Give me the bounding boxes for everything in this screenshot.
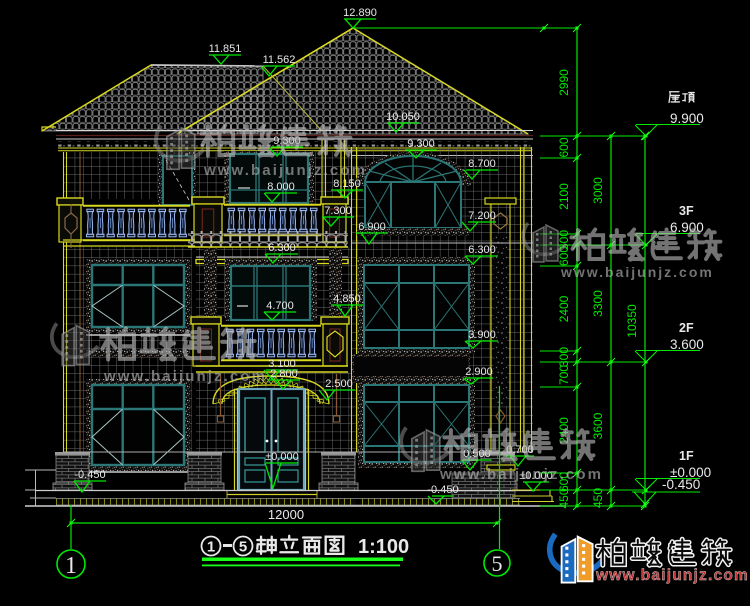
svg-text:6.300: 6.300	[468, 244, 496, 256]
svg-text:600: 600	[557, 137, 571, 157]
svg-text:11.562: 11.562	[263, 54, 296, 66]
svg-text:4.850: 4.850	[333, 293, 361, 305]
svg-text:10350: 10350	[625, 304, 639, 338]
svg-text:450: 450	[557, 488, 571, 508]
svg-text:1F: 1F	[679, 449, 694, 463]
svg-text:www.baijunjz.com: www.baijunjz.com	[103, 368, 267, 385]
svg-text:www.baijunjz.com: www.baijunjz.com	[439, 466, 603, 483]
svg-text:2.500: 2.500	[325, 378, 353, 390]
svg-text:11.851: 11.851	[209, 43, 242, 55]
svg-text:7.200: 7.200	[468, 210, 496, 222]
svg-text:700: 700	[557, 365, 571, 385]
svg-text:www.baijunjz.com: www.baijunjz.com	[560, 264, 714, 280]
svg-text:5: 5	[239, 539, 247, 556]
svg-text:3.600: 3.600	[670, 337, 704, 352]
svg-text:450: 450	[591, 488, 605, 508]
svg-text:-0.450: -0.450	[662, 477, 700, 492]
svg-text:5: 5	[492, 551, 503, 576]
svg-text:2.800: 2.800	[270, 368, 298, 380]
svg-text:9.300: 9.300	[407, 138, 435, 150]
svg-text:9.900: 9.900	[670, 111, 704, 126]
svg-text:2.900: 2.900	[465, 366, 493, 378]
svg-text:3.900: 3.900	[468, 329, 496, 341]
svg-text:±0.000: ±0.000	[265, 451, 299, 463]
svg-text:6.300: 6.300	[268, 242, 296, 254]
svg-text:12000: 12000	[268, 507, 304, 522]
svg-text:-0.450: -0.450	[427, 484, 458, 496]
svg-text:6.900: 6.900	[358, 221, 386, 233]
svg-text:8.000: 8.000	[267, 181, 295, 193]
svg-text:3300: 3300	[591, 290, 605, 317]
svg-text:4.700: 4.700	[266, 300, 294, 312]
svg-text:3600: 3600	[591, 412, 605, 439]
svg-text:3F: 3F	[679, 204, 694, 218]
svg-text:8.150: 8.150	[333, 178, 361, 190]
svg-text:2990: 2990	[557, 69, 571, 96]
svg-text:www.baijunjz.com: www.baijunjz.com	[203, 162, 367, 179]
svg-text:10.050: 10.050	[386, 111, 420, 123]
svg-text:1:100: 1:100	[358, 536, 409, 558]
svg-text:2F: 2F	[679, 321, 694, 335]
svg-text:2400: 2400	[557, 295, 571, 322]
svg-text:8.700: 8.700	[468, 158, 496, 170]
svg-text:www.baijunjz.com: www.baijunjz.com	[595, 567, 749, 584]
svg-text:-0.450: -0.450	[74, 469, 105, 481]
svg-text:1: 1	[65, 553, 77, 579]
svg-text:7.300: 7.300	[324, 205, 352, 217]
svg-text:3000: 3000	[591, 177, 605, 204]
svg-text:300: 300	[557, 347, 571, 367]
svg-text:12.890: 12.890	[343, 7, 377, 19]
svg-text:1: 1	[207, 539, 215, 556]
svg-text:2100: 2100	[557, 183, 571, 210]
